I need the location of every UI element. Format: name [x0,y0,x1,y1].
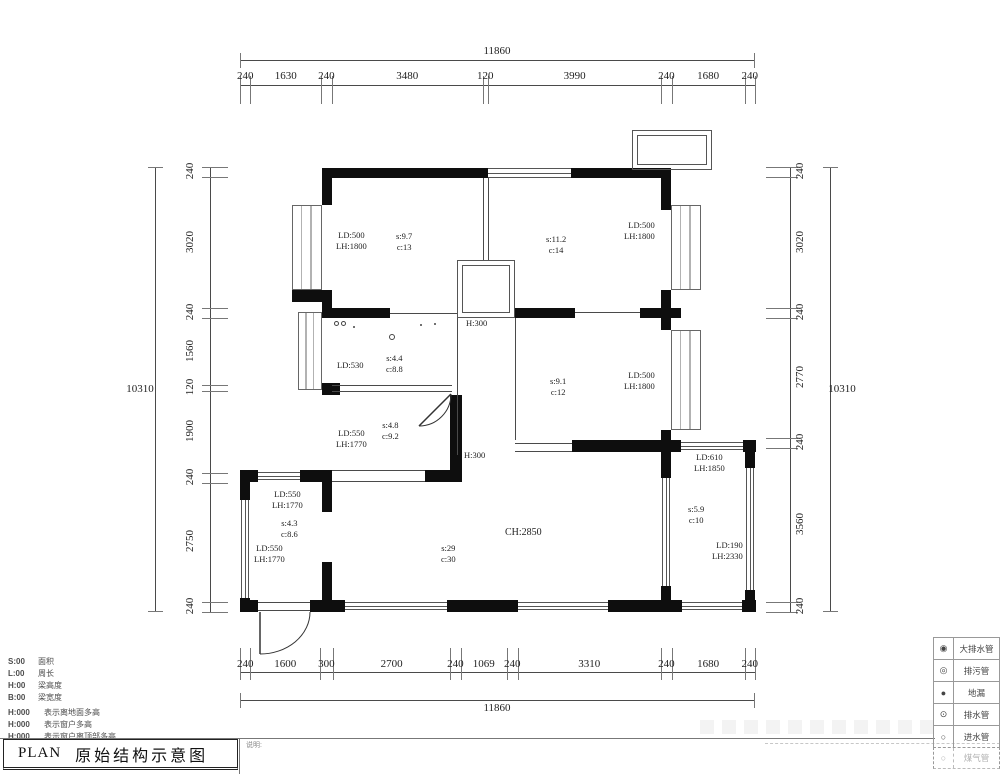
wall-segment [292,290,332,302]
dim-line-top-total [240,60,755,61]
dim-tick [202,483,228,484]
dim-tick [202,385,228,386]
dim-label: 240 [730,70,770,82]
symbol-row: ● 地漏 [933,681,1000,703]
note-label: 说明: [246,740,262,750]
legend-codes: S:00面积 L:00周长 H:00梁高度 B:00梁宽度 [8,656,62,704]
wall-segment [300,470,332,482]
room-label-living-height: CH:2850 [505,527,542,540]
dim-tick [148,167,163,168]
room-label-bath-area: s:4.8 c:9.2 [382,420,399,441]
wall-segment [640,308,681,318]
dim-line-bottom-total [240,700,755,701]
room-label-living-area: s:29 c:30 [441,543,456,564]
fixture-dot [434,323,436,325]
dim-label: 240 [225,658,265,670]
pipe-symbol-icon: ◎ [934,660,954,681]
dim-tick [202,612,228,613]
dim-tick [202,167,228,168]
wall-line [488,178,489,260]
dim-label: 240 [794,586,806,626]
dim-tick [823,611,838,612]
watermark [700,720,935,734]
window [518,602,608,610]
dim-label: 2770 [794,357,806,397]
dim-label: 300 [306,658,346,670]
legend-row: L:00周长 [8,668,62,680]
dim-tick [754,693,755,708]
dim-label: 120 [465,70,505,82]
pipe-symbol-table: ◉ 大排水管 ◎ 排污管 ● 地漏 ⊙ 排水管 ○ 进水管 ○ 煤气管 [933,637,1000,769]
dim-label: 2700 [372,658,412,670]
dim-total-top: 11860 [467,45,527,57]
door-arc [415,390,455,430]
wall-segment [515,308,575,318]
wall-segment [745,590,755,612]
fixture-dot [353,326,355,328]
dim-label: 240 [184,457,196,497]
legend-row: H:000表示离地面多高 [8,707,116,719]
wall-segment [322,482,332,512]
room-label-bed3-window: LD:500 LH:1800 [624,370,655,391]
dim-label: 3480 [387,70,427,82]
window [488,168,571,178]
dim-tick [202,602,228,603]
balcony-outline [632,130,712,170]
dim-tick [202,177,228,178]
wall-segment [322,178,332,205]
room-label-bed1-window: LD:500 LH:1800 [336,230,367,251]
wall-segment [447,600,518,612]
wall-segment [743,440,756,452]
dim-label: 240 [492,658,532,670]
dim-total-right: 10310 [812,383,872,395]
wall-segment [661,430,671,478]
dim-label: 240 [794,292,806,332]
dim-tick [823,167,838,168]
wall-line [332,481,425,482]
room-label-porch-topwindow: LD:550 LH:1770 [272,489,303,510]
room-label-balcony-rightwindow: LD:190 LH:2330 [712,540,743,561]
room-label-bath-window: LD:550 LH:1770 [336,428,367,449]
wall-segment [661,168,671,210]
pipe-symbol-icon: ● [934,682,954,703]
dim-label: 1680 [688,658,728,670]
wall-segment [661,440,681,452]
dim-label: 240 [184,586,196,626]
room-label-balcony-area: s:5.9 c:10 [688,504,704,525]
dim-label: 120 [184,367,196,407]
dim-label: 3020 [184,222,196,262]
symbol-row: ○ 煤气管 [933,747,1000,769]
dim-label: 240 [306,70,346,82]
pipe-symbol-icon: ○ [934,726,954,747]
door-opening-line [390,313,457,314]
dim-label: 240 [730,658,770,670]
fixture-dot [420,324,422,326]
window [258,472,300,480]
dim-label: 3990 [555,70,595,82]
symbol-row: ◎ 排污管 [933,659,1000,681]
dim-label: 2750 [184,521,196,561]
wall-line [332,385,452,386]
window [345,602,447,610]
room-label-porch-leftwindow: LD:550 LH:1770 [254,543,285,564]
wall-segment [745,452,755,468]
dim-chain-line [240,672,755,673]
dim-chain-line [210,167,211,612]
fixture-dot [334,321,339,326]
door-opening-line [575,312,640,313]
entry-door-arc [258,612,312,656]
title-plan: PLAN [18,745,61,762]
window [746,468,754,590]
dim-label: 240 [646,70,686,82]
pipe-symbol-icon: ◉ [934,638,954,659]
pipe-symbol-icon: ⊙ [934,704,954,725]
shaft-box [457,260,515,318]
wall-segment [322,308,390,318]
wall-line [515,318,516,440]
dim-chain-line [790,167,791,612]
room-label-kitchen-area: s:4.4 c:8.8 [386,353,403,374]
title-block: PLAN 原始结构示意图 [3,739,238,770]
symbol-row: ◉ 大排水管 [933,637,1000,659]
floorplan-canvas: 11860 11860 10310 10310 2401630240348012… [0,0,1000,774]
legend-row: S:00面积 [8,656,62,668]
wall-segment [310,600,345,612]
room-label-bed1-area: s:9.7 c:13 [396,231,412,252]
dim-label: 240 [184,292,196,332]
dim-label: 1680 [688,70,728,82]
dim-label: 1900 [184,411,196,451]
threshold-line [258,602,310,603]
legend-row: H:00梁高度 [8,680,62,692]
sliding-door [662,478,670,586]
window [681,442,743,450]
room-label-bed3-area: s:9.1 c:12 [550,376,566,397]
beam-label-1: H:300 [466,318,487,329]
fixture-dot [389,334,395,340]
dim-tick [202,473,228,474]
pipe-symbol-icon: ○ [934,748,954,768]
dim-label: 3310 [569,658,609,670]
balcony-outline-inner [637,135,707,165]
window [682,602,742,610]
dim-tick [202,318,228,319]
wall-segment [322,168,488,178]
legend-row: B:00梁宽度 [8,692,62,704]
dim-label: 240 [646,658,686,670]
wall-segment [240,470,258,482]
room-label-porch-area: s:4.3 c:8.6 [281,518,298,539]
bay-window [292,205,322,290]
dim-label: 3560 [794,504,806,544]
dim-chain-line [240,85,755,86]
dim-label: 240 [184,151,196,191]
dim-tick [240,693,241,708]
dim-label: 1600 [265,658,305,670]
room-label-balcony-topwindow: LD:610 LH:1850 [694,452,725,473]
dim-total-bottom: 11860 [467,702,527,714]
door-opening-line [515,451,572,452]
page-title: 原始结构示意图 [75,742,208,766]
sheet-divider-line [239,738,240,774]
wall-segment [425,470,462,482]
dim-label: 1630 [266,70,306,82]
dim-label: 3020 [794,222,806,262]
door-opening-line [515,443,572,444]
bay-window [671,330,701,430]
wall-segment [661,586,671,612]
fixture-dot [341,321,346,326]
dim-total-left: 10310 [110,383,170,395]
symbol-row: ○ 进水管 [933,725,1000,747]
wall-segment [240,600,258,612]
dim-label: 240 [794,151,806,191]
dim-tick [148,611,163,612]
shaft-box-inner [462,265,510,313]
dim-label: 1560 [184,331,196,371]
beam-label-2: H:300 [464,450,485,461]
threshold-line [258,610,310,611]
wall-line [483,178,484,260]
dim-label: 240 [794,422,806,462]
bay-window [671,205,701,290]
dim-tick [754,53,755,68]
wall-line [457,318,458,455]
dim-tick [240,53,241,68]
symbol-row: ⊙ 排水管 [933,703,1000,725]
legend-row: H:000表示窗户多高 [8,719,116,731]
room-label-kitchen-window: LD:530 [337,360,363,371]
wall-line [332,470,425,471]
dim-tick [202,308,228,309]
dim-tick [202,391,228,392]
wall-segment [240,482,250,500]
room-label-bed2-area: s:11.2 c:14 [546,234,566,255]
bay-window [298,312,322,390]
dim-label: 240 [225,70,265,82]
window [241,500,249,598]
room-label-bed2-window: LD:500 LH:1800 [624,220,655,241]
